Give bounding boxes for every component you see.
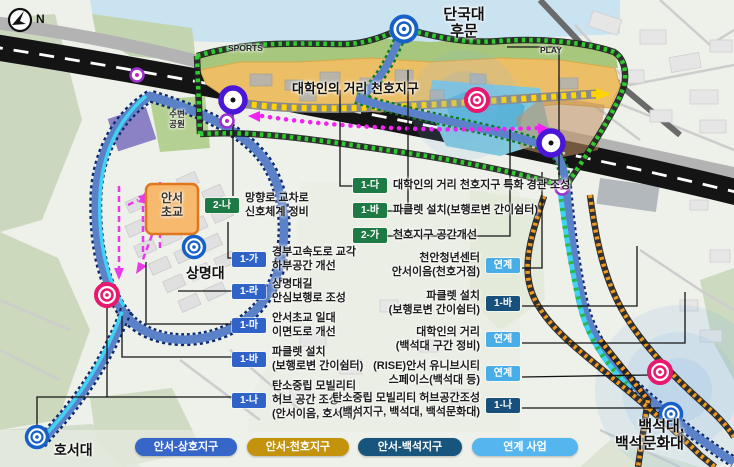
waterside-line2: 공원 [162,120,192,130]
badge-1ba-mid: 1-바 [353,203,387,218]
anseo-elementary-label: 안서 초교 [150,192,194,220]
callout-1na-left-line2: 허브 공간 조성 [272,394,339,406]
dankook-gate-line2: 후문 [432,23,496,40]
hub-marker-pink-baekseok [649,361,671,383]
hub-marker-pink-anseo [96,284,118,306]
callout-link-street: 대학인의 거리 (백석대 구간 정비) 연계 [396,326,520,354]
callout-2ga-text: 천호지구 공간개선 [393,229,477,243]
callout-1da-text: 대학인의 거리 천호지구 특화 경관 조성 [393,179,570,193]
callout-1ba-left-line1: 파클렛 설치 [272,346,326,358]
callout-1ba-mid: 1-바 파클렛 설치(보행로변 간이쉼터) [353,203,538,218]
baekseok-line1: 백석대, [576,418,684,435]
badge-1na-left: 1-나 [232,393,266,408]
map-canvas: N 단국대 후문 SPORTS PLAY 대학인의 거리 천호지구 수변 공원 … [0,0,734,467]
callout-1ga: 1-가 경부고속도로 교각 하부공간 개선 [232,246,356,274]
callout-rise-line1: (RISE)안서 유니브시티 [373,360,480,372]
callout-1ba-left: 1-바 파클렛 설치 (보행로변 간이쉼터) [232,346,363,374]
anseo-line1: 안서 [150,192,194,206]
callout-link-youthcenter: 천안청년센터 안서이음(천호거점) 연계 [392,252,520,280]
hoseo-label: 호서대 [54,440,93,460]
callout-2na: 2-나 망향로 교차로 신호체계 정비 [205,192,309,220]
crossing-marker-small-1 [131,69,144,82]
dankook-gate-label: 단국대 후문 [432,6,496,41]
callout-street-line1: 대학인의 거리 [416,326,480,338]
callout-1ba-right-line1: 파클렛 설치 [426,290,480,302]
badge-1na-right: 1-나 [486,398,520,413]
badge-1ba-right: 1-바 [486,296,520,311]
badge-1ba-left: 1-바 [232,352,266,367]
callout-1ra-line2: 안심보행로 조성 [272,292,346,304]
callout-2ga: 2-가 천호지구 공간개선 [353,228,477,243]
north-label: N [36,12,45,26]
badge-link-1: 연계 [486,258,520,273]
badge-1ma: 1-마 [232,318,266,333]
sangmyung-label: 상명대 [186,263,225,283]
badge-1da: 1-다 [353,178,387,193]
callout-1ma-line2: 이면도로 개선 [272,326,336,338]
waterside-park-label: 수변 공원 [162,110,192,130]
dankook-gate-line1: 단국대 [432,6,496,23]
callout-link-rise: (RISE)안서 유니브시티 스페이스(백석대 등) 연계 [373,360,520,388]
badge-1ga: 1-가 [232,252,266,267]
cheonho-district-label: 대학인의 거리 천호지구 [292,78,419,97]
crossing-marker-big-2 [539,131,563,155]
callout-youthcenter-line1: 천안청년센터 [419,252,480,264]
legend-anseo-cheonho: 안서-천호지구 [247,438,349,456]
crossing-marker-big-1 [221,88,245,112]
callout-1da: 1-다 대학인의 거리 천호지구 특화 경관 조성 [353,178,570,193]
badge-1ra: 1-라 [232,284,266,299]
callout-1ga-line2: 하부공간 개선 [272,260,336,272]
callout-1ma-line1: 안서초교 일대 [272,312,336,324]
callout-street-line2: (백석대 구간 정비) [396,340,480,352]
badge-2na: 2-나 [205,198,239,213]
callout-2na-line2: 신호체계 정비 [245,206,309,218]
callout-1ga-line1: 경부고속도로 교각 [272,246,356,258]
callout-1na-left-line1: 탄소중립 모빌리티 [272,380,356,392]
callout-1ra: 1-라 상명대길 안심보행로 조성 [232,278,346,306]
baekseok-line2: 백석문화대 [576,435,684,452]
callout-1ba-mid-text: 파클렛 설치(보행로변 간이쉼터) [393,204,538,218]
callout-1na-right: 탄소중립 모빌리티 허브공간조성 (백석지구, 백석대, 백석문화대) 1-나 [332,392,520,420]
callout-youthcenter-line2: 안서이음(천호거점) [392,266,480,278]
callout-1ma: 1-마 안서초교 일대 이면도로 개선 [232,312,336,340]
callout-1na-right-line2: (백석지구, 백석대, 백석문화대) [339,406,480,418]
crossing-marker-small-2 [221,115,234,128]
legend-anseo-baekseok: 안서-백석지구 [358,438,462,456]
callout-1ba-left-line2: (보행로변 간이쉼터) [272,360,363,372]
legend-anseo-sangho: 안서-상호지구 [135,438,237,456]
univ-marker-dankook [392,17,417,42]
anseo-line2: 초교 [150,206,194,220]
callout-rise-line2: 스페이스(백석대 등) [389,374,480,386]
callout-1ba-right: 파클렛 설치 (보행로변 간이쉼터) 1-바 [389,290,520,318]
callout-1ba-right-line2: (보행로변 간이쉼터) [389,304,480,316]
baekseok-label: 백석대, 백석문화대 [576,418,684,453]
callout-1na-right-line1: 탄소중립 모빌리티 허브공간조성 [332,392,480,404]
callout-1ra-line1: 상명대길 [272,278,312,290]
north-arrow-icon [9,9,31,31]
callout-2na-line1: 망향로 교차로 [245,192,309,204]
univ-marker-hoseo [27,427,48,448]
badge-2ga: 2-가 [353,228,387,243]
badge-link-2: 연계 [486,332,520,347]
badge-link-3: 연계 [486,366,520,381]
legend-linked-projects: 연계 사업 [472,438,578,456]
play-label: PLAY [540,46,562,56]
hub-marker-pink-cheonho [466,89,488,111]
univ-marker-sangmyung [184,237,205,258]
sports-label: SPORTS [228,44,263,54]
